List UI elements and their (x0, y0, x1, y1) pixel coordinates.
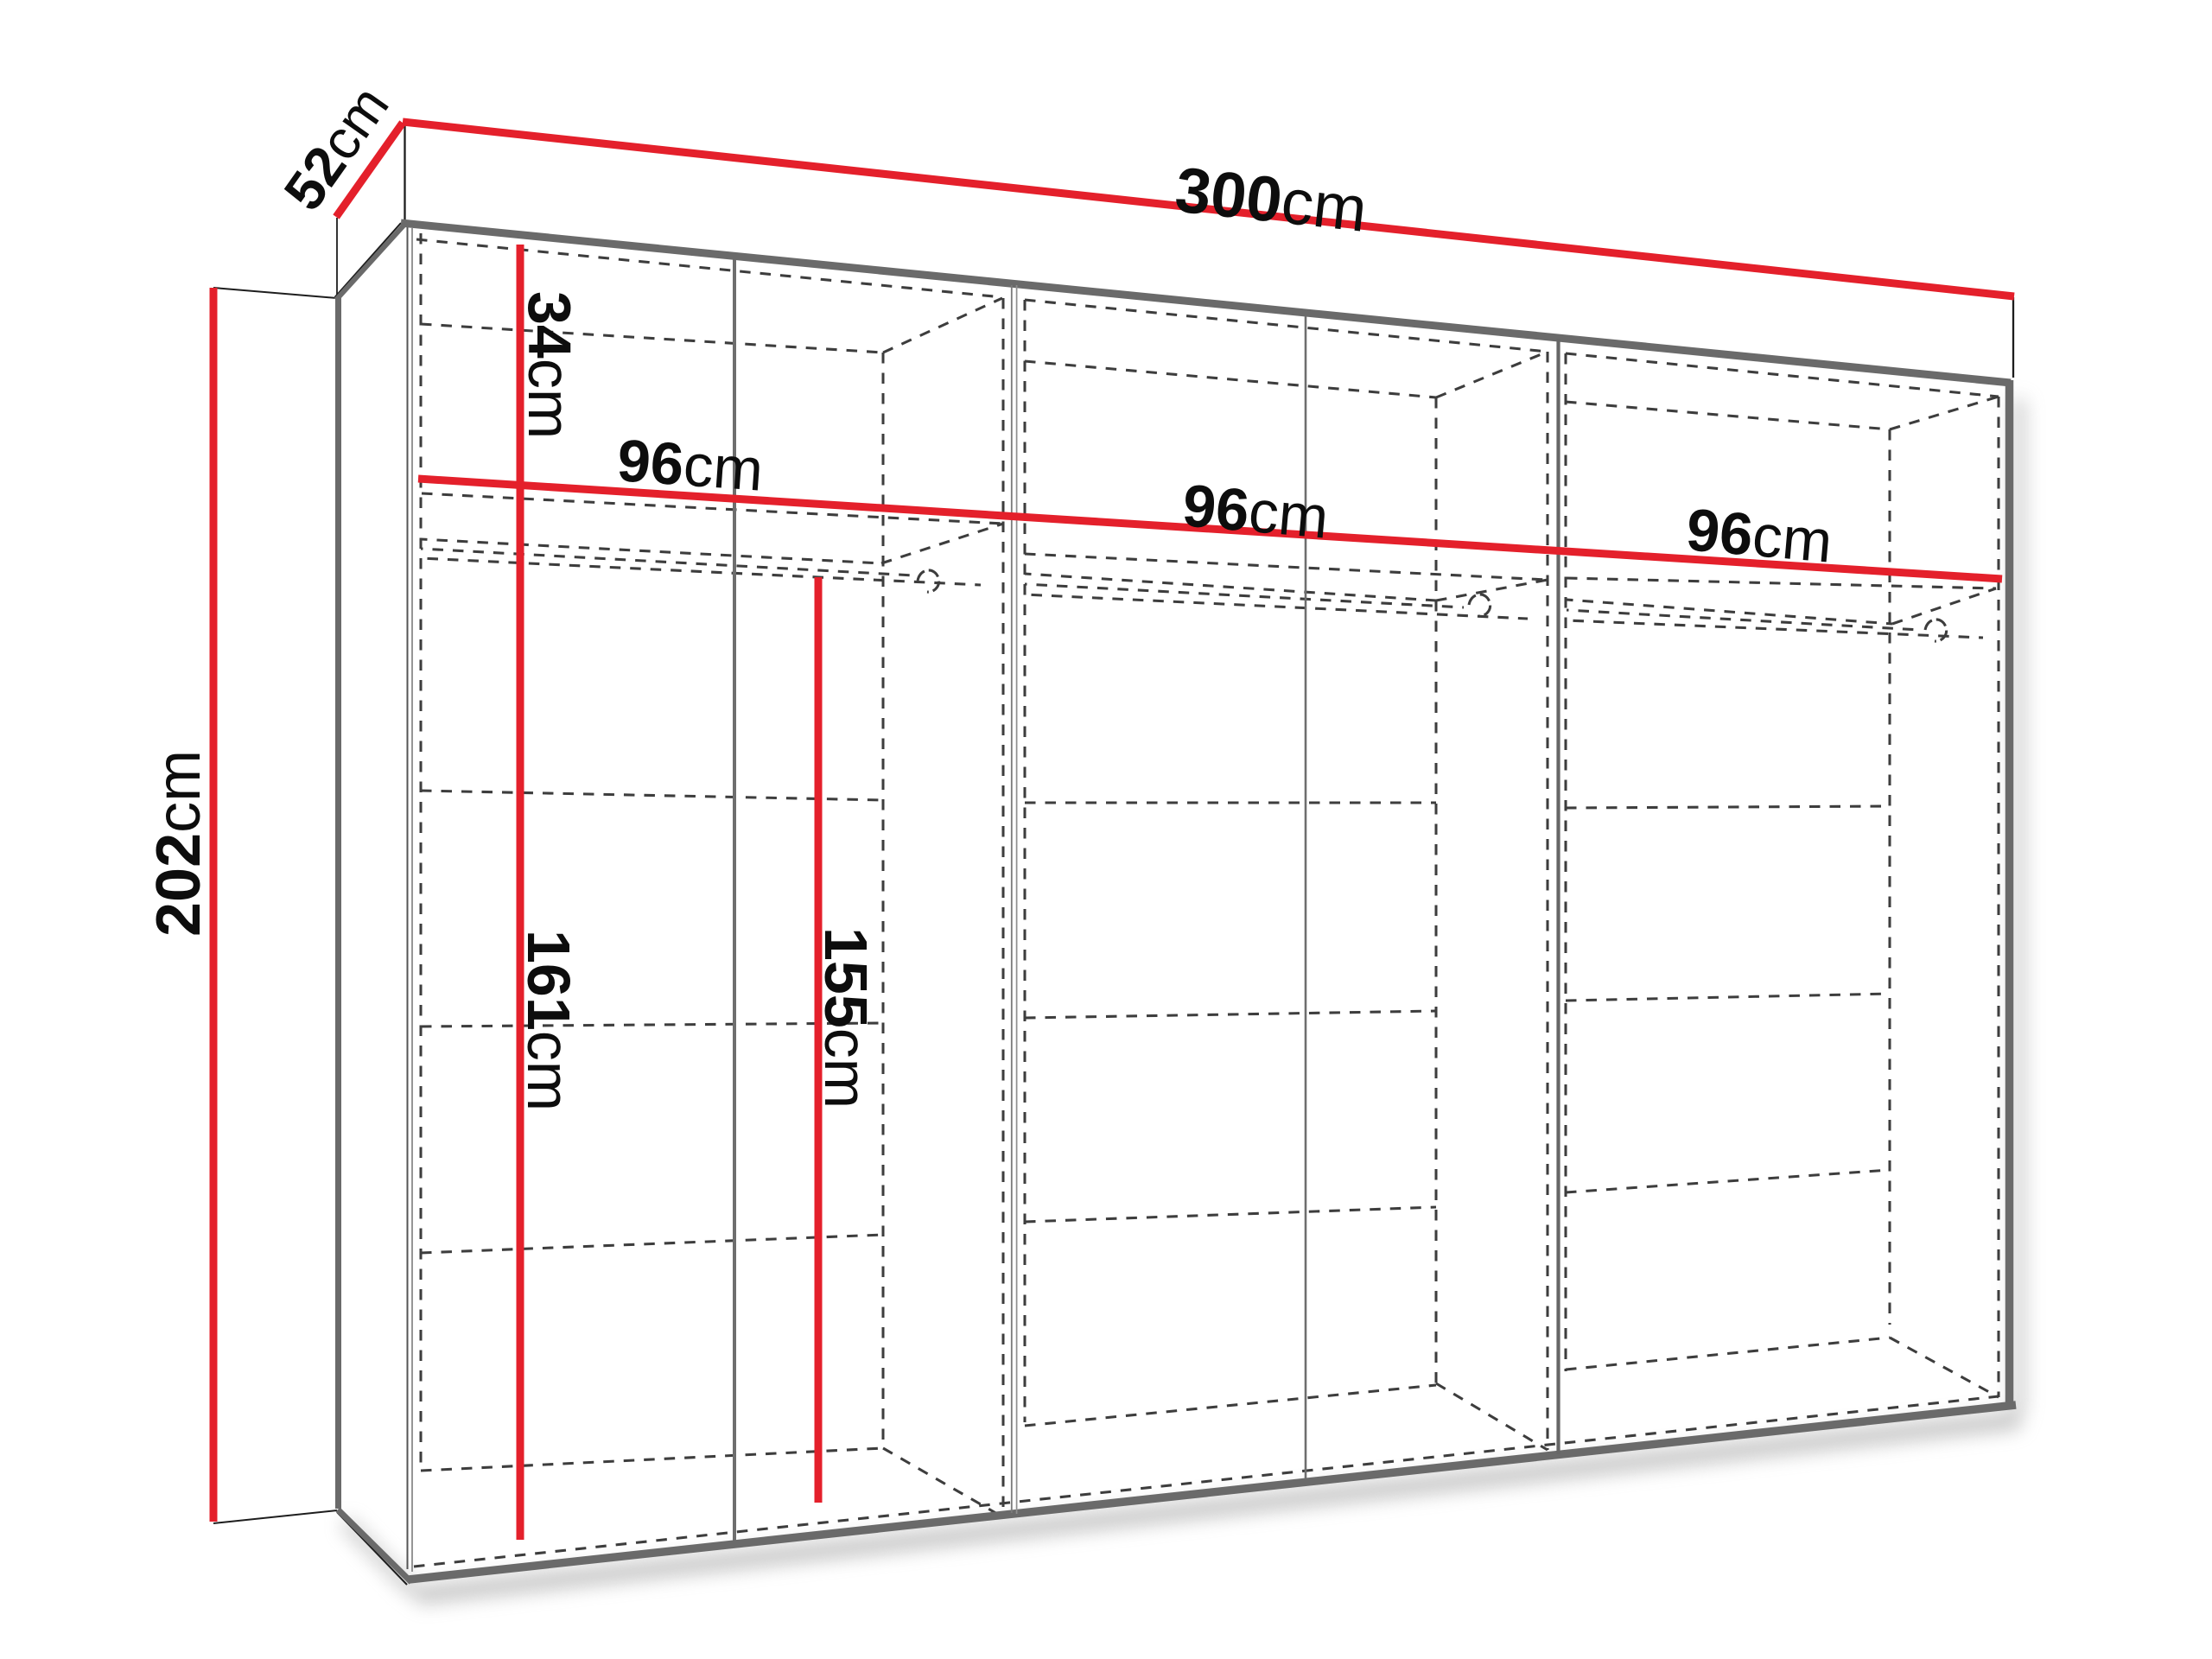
svg-text:96cm: 96cm (615, 427, 766, 504)
svg-text:202cm: 202cm (144, 750, 213, 937)
svg-text:96cm: 96cm (1180, 472, 1332, 550)
svg-text:161cm: 161cm (515, 930, 582, 1111)
svg-text:300cm: 300cm (1172, 153, 1370, 245)
svg-text:96cm: 96cm (1684, 496, 1835, 575)
svg-text:34cm: 34cm (516, 291, 583, 439)
svg-text:155cm: 155cm (812, 927, 880, 1109)
